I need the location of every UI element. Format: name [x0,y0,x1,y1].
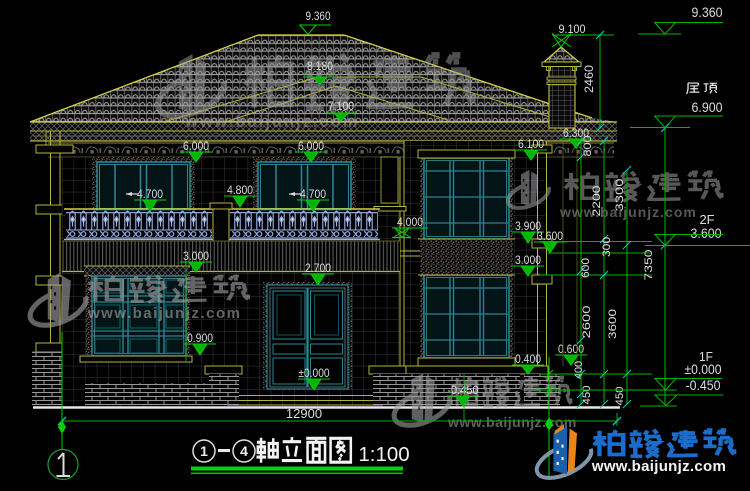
svg-text:7350: 7350 [643,250,655,281]
svg-text:800: 800 [582,136,594,157]
svg-text:600: 600 [580,258,592,278]
svg-text:1:100: 1:100 [358,443,409,466]
svg-text:3.600: 3.600 [691,226,722,241]
svg-text:www.baijunjz.com: www.baijunjz.com [184,113,359,131]
svg-text:4.000: 4.000 [397,217,423,229]
svg-text:-0.450: -0.450 [686,378,721,393]
svg-text:2200: 2200 [591,186,603,217]
svg-text:450: 450 [581,386,593,405]
svg-text:-0.450: -0.450 [447,385,478,397]
svg-text:6.000: 6.000 [298,141,324,153]
svg-text:2F: 2F [700,213,715,227]
svg-text:6.000: 6.000 [183,141,209,153]
svg-text:±0.000: ±0.000 [685,362,722,377]
svg-text:±0.000: ±0.000 [298,368,329,380]
svg-text:www.baijunjz.com: www.baijunjz.com [447,414,577,430]
svg-text:0.900: 0.900 [187,333,213,345]
svg-text:4.700: 4.700 [137,189,163,201]
svg-text:12900: 12900 [286,406,322,421]
svg-text:450: 450 [614,387,626,406]
svg-text:6.900: 6.900 [692,100,723,115]
svg-text:4.800: 4.800 [227,185,253,197]
svg-text:9.100: 9.100 [559,24,586,36]
svg-text:3.000: 3.000 [183,251,209,263]
svg-text:3600: 3600 [607,309,619,339]
svg-text:2460: 2460 [584,65,596,93]
svg-text:3.000: 3.000 [515,255,541,267]
svg-text:3300: 3300 [614,179,626,212]
svg-text:0.600: 0.600 [558,344,584,356]
svg-text:www.baijunjz.com: www.baijunjz.com [87,305,241,322]
svg-text:4: 4 [240,443,248,459]
svg-text:9.360: 9.360 [306,9,331,23]
svg-text:6.100: 6.100 [518,139,544,151]
svg-text:www.baijunjz.com: www.baijunjz.com [591,458,726,475]
svg-text:1: 1 [200,443,208,459]
svg-text:2.700: 2.700 [305,263,331,275]
svg-text:300: 300 [601,237,613,257]
svg-text:400: 400 [573,361,585,379]
svg-text:7.100: 7.100 [328,101,354,113]
svg-text:9.360: 9.360 [692,5,723,20]
svg-text:4.700: 4.700 [300,189,326,201]
svg-text:www.baijunjz.com: www.baijunjz.com [559,204,697,220]
svg-text:0.400: 0.400 [515,354,541,366]
svg-text:2600: 2600 [581,306,593,339]
svg-text:8.180: 8.180 [307,61,333,73]
